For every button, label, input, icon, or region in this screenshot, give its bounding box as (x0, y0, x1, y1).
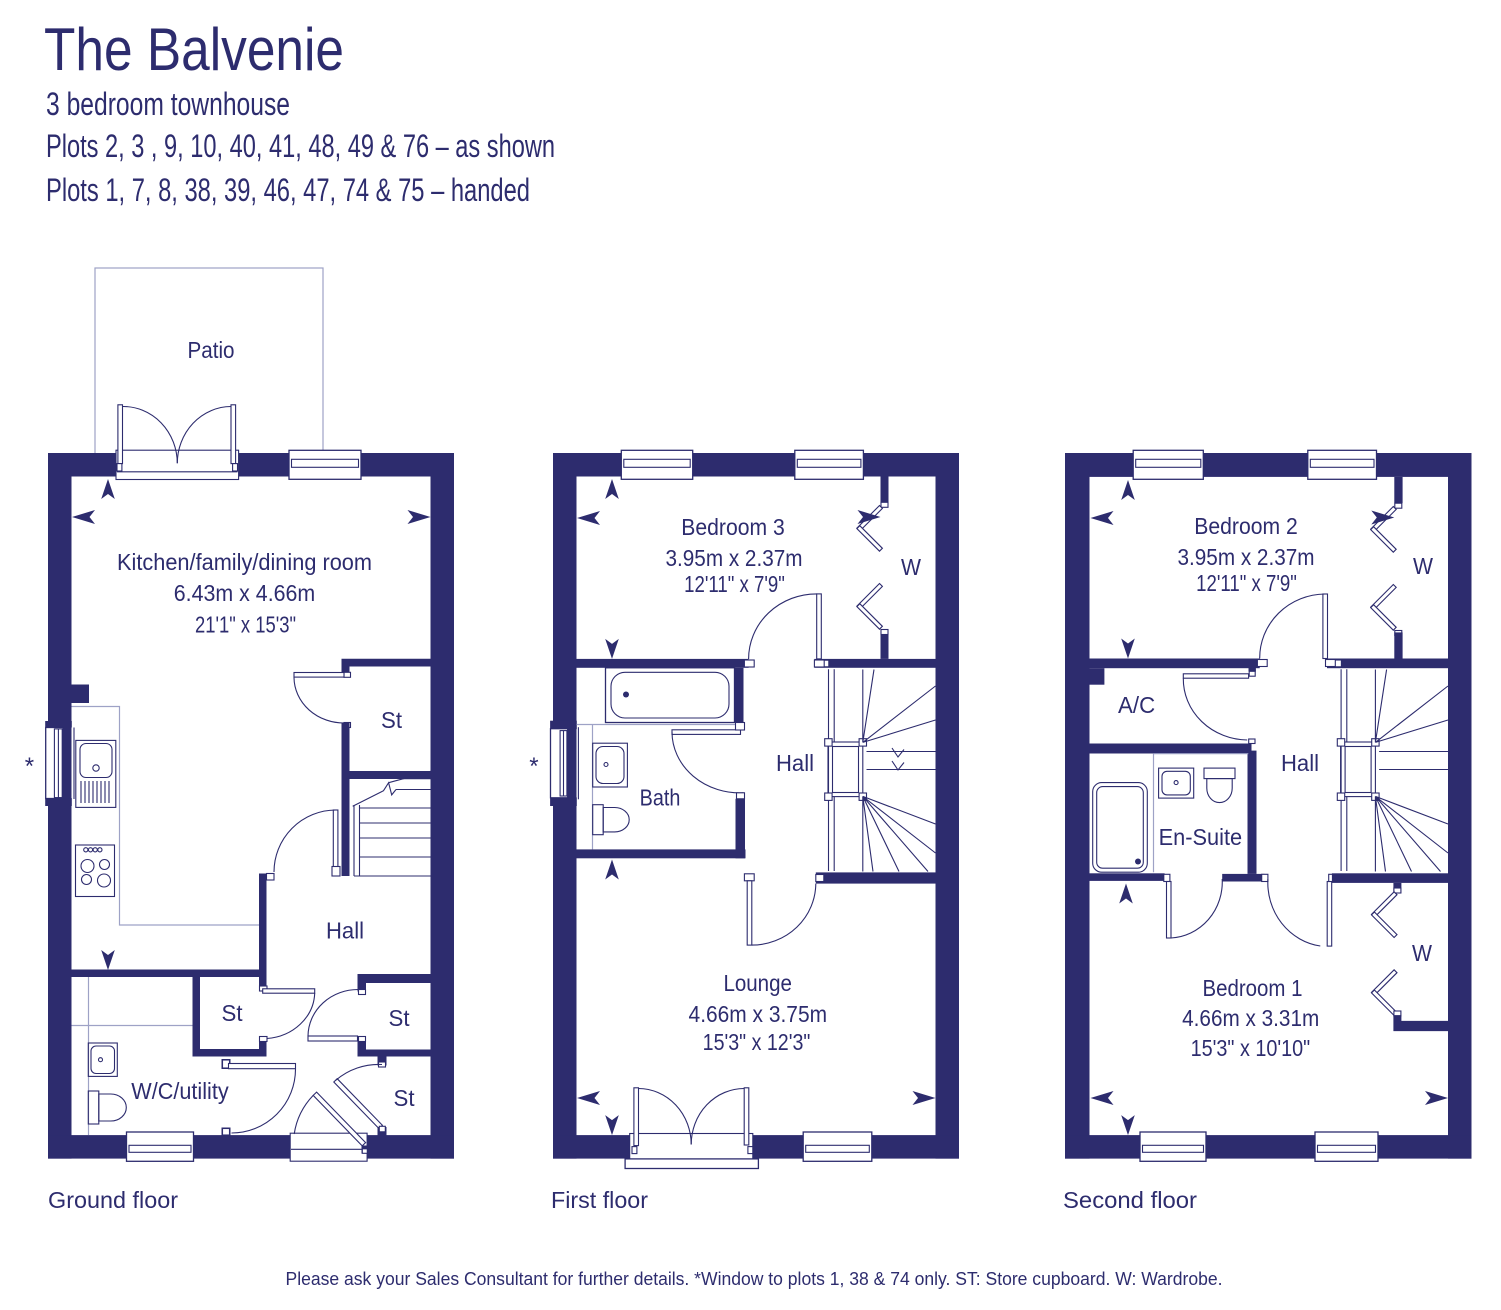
svg-text:6.43m x 4.66m: 6.43m x 4.66m (174, 580, 316, 606)
svg-text:W: W (1412, 940, 1433, 966)
svg-text:Second floor: Second floor (1063, 1187, 1197, 1213)
svg-text:Bedroom 1: Bedroom 1 (1203, 975, 1303, 1001)
svg-text:St: St (381, 707, 402, 733)
svg-text:Bedroom 3: Bedroom 3 (681, 514, 785, 540)
svg-text:W/C/utility: W/C/utility (131, 1078, 229, 1104)
svg-text:*: * (529, 753, 538, 780)
svg-text:Ground floor: Ground floor (48, 1187, 178, 1213)
svg-text:15'3" x 12'3": 15'3" x 12'3" (703, 1029, 811, 1055)
svg-text:W: W (901, 554, 922, 580)
svg-text:21'1" x 15'3": 21'1" x 15'3" (195, 612, 296, 638)
svg-text:En-Suite: En-Suite (1159, 824, 1243, 850)
svg-text:St: St (389, 1005, 410, 1031)
svg-text:Plots 2, 3 , 9, 10, 40, 41, 48: Plots 2, 3 , 9, 10, 40, 41, 48, 49 & 76 … (46, 128, 555, 164)
svg-text:The Balvenie: The Balvenie (44, 16, 344, 83)
svg-text:Please ask your Sales Consulta: Please ask your Sales Consultant for fur… (286, 1269, 1223, 1289)
svg-text:3 bedroom townhouse: 3 bedroom townhouse (46, 86, 290, 122)
svg-text:4.66m x 3.75m: 4.66m x 3.75m (689, 1001, 828, 1027)
svg-text:12'11" x 7'9": 12'11" x 7'9" (684, 571, 785, 597)
svg-text:Plots 1, 7, 8, 38, 39, 46, 47,: Plots 1, 7, 8, 38, 39, 46, 47, 74 & 75 –… (46, 172, 530, 208)
svg-text:Lounge: Lounge (723, 970, 792, 996)
svg-text:Bedroom 2: Bedroom 2 (1194, 513, 1298, 539)
svg-text:*: * (25, 753, 34, 780)
svg-text:15'3" x 10'10": 15'3" x 10'10" (1191, 1035, 1311, 1061)
svg-text:Hall: Hall (326, 918, 364, 944)
svg-text:Hall: Hall (1281, 750, 1319, 776)
svg-text:St: St (394, 1085, 415, 1111)
svg-text:Bath: Bath (640, 785, 681, 811)
svg-text:3.95m x 2.37m: 3.95m x 2.37m (666, 545, 803, 571)
svg-text:W: W (1413, 553, 1434, 579)
svg-text:3.95m x 2.37m: 3.95m x 2.37m (1178, 544, 1315, 570)
svg-text:4.66m x 3.31m: 4.66m x 3.31m (1182, 1005, 1319, 1031)
svg-text:A/C: A/C (1118, 692, 1155, 718)
svg-text:12'11" x 7'9": 12'11" x 7'9" (1196, 570, 1297, 596)
svg-text:Patio: Patio (188, 337, 235, 363)
svg-text:First floor: First floor (551, 1187, 648, 1213)
svg-text:Kitchen/family/dining room: Kitchen/family/dining room (117, 549, 372, 575)
svg-text:St: St (222, 1000, 243, 1026)
svg-text:Hall: Hall (776, 750, 814, 776)
